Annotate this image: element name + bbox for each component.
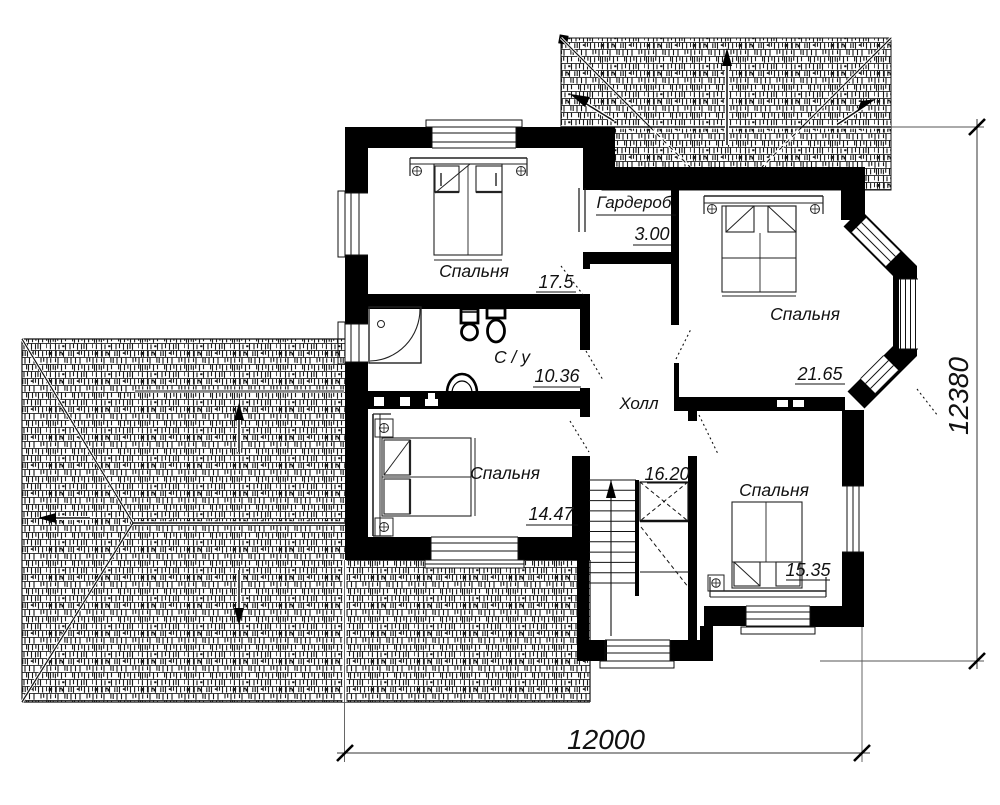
svg-text:Холл: Холл [618, 394, 659, 413]
svg-text:12000: 12000 [567, 724, 645, 755]
svg-text:Спальня: Спальня [470, 463, 540, 483]
svg-text:Спальня: Спальня [439, 261, 509, 281]
svg-text:10.36: 10.36 [534, 366, 580, 386]
svg-text:14.47: 14.47 [528, 504, 574, 524]
svg-text:Спальня: Спальня [739, 480, 809, 500]
svg-text:12380: 12380 [943, 357, 974, 435]
svg-text:Гардероб: Гардероб [597, 193, 673, 212]
svg-text:16.20: 16.20 [644, 464, 689, 484]
svg-text:С / у: С / у [494, 347, 531, 367]
svg-text:21.65: 21.65 [796, 364, 843, 384]
svg-text:3.00: 3.00 [634, 224, 669, 244]
svg-text:Спальня: Спальня [770, 304, 840, 324]
svg-text:15.35: 15.35 [785, 560, 831, 580]
svg-text:17.5: 17.5 [538, 272, 574, 292]
